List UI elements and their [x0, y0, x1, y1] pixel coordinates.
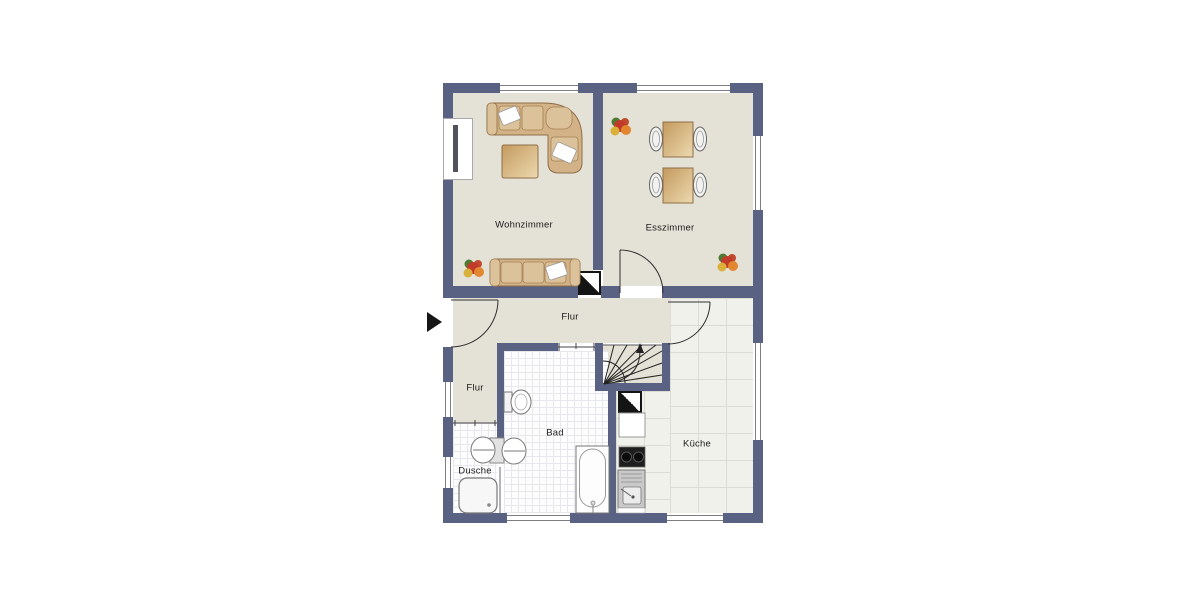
bathtub — [576, 446, 609, 513]
room-label-esszimmer: Esszimmer — [646, 223, 695, 234]
room-label-dusche: Dusche — [458, 466, 491, 477]
sofa — [490, 259, 580, 286]
room-label-flur-klein: Flur — [466, 383, 483, 394]
toilet — [504, 390, 531, 414]
room-label-flur: Flur — [561, 312, 578, 323]
entry-door — [451, 300, 498, 347]
plant-icon — [718, 254, 739, 272]
entrance-arrow-icon — [427, 312, 442, 332]
room-label-kueche: Küche — [683, 439, 711, 450]
dining-set-1 — [650, 122, 707, 157]
dusche-passage-line — [453, 420, 497, 426]
room-label-bad: Bad — [546, 428, 564, 439]
kitchen-sink — [618, 470, 645, 508]
dining-table — [663, 122, 693, 157]
plant-icon — [464, 260, 485, 278]
stairs — [603, 343, 662, 384]
floor-plan-canvas: Wohnzimmer Esszimmer Flur Flur Bad Dusch… — [0, 0, 1200, 600]
dining-set-2 — [650, 168, 707, 203]
washbasin-pair — [471, 437, 526, 464]
floor-plan: Wohnzimmer Esszimmer Flur Flur Bad Dusch… — [443, 83, 763, 523]
esszimmer-door — [620, 250, 663, 293]
bad-doorway-line — [558, 343, 595, 351]
coffee-table — [502, 145, 538, 178]
kueche-door — [668, 302, 710, 344]
shower-tray — [459, 478, 497, 513]
plan-graphics — [443, 83, 763, 523]
stairs-up-arrow-icon — [615, 343, 644, 382]
plant-icon — [611, 118, 632, 136]
room-label-wohnzimmer: Wohnzimmer — [495, 220, 553, 231]
kitchen-counter — [618, 413, 645, 513]
cooktop — [619, 447, 645, 467]
dining-table — [663, 168, 693, 203]
